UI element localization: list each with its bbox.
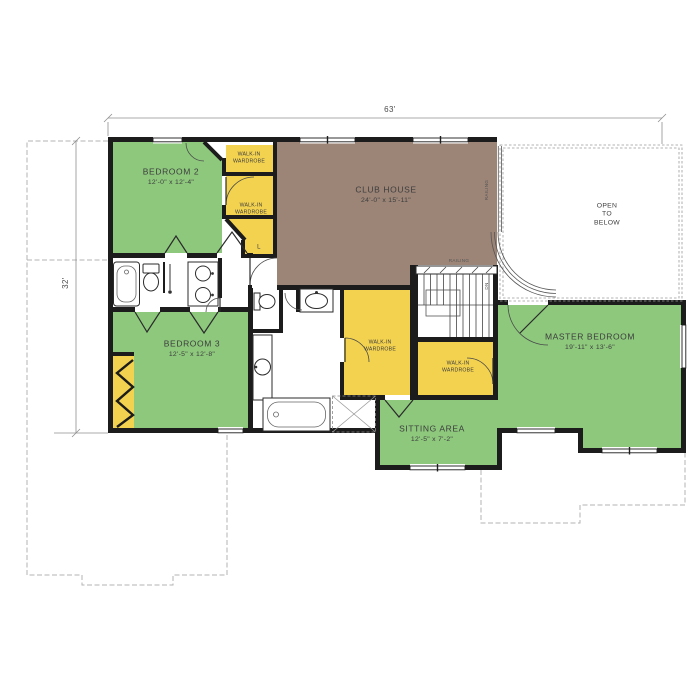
bedroom3-size: 12'-5" x 12'-8" [169,351,215,359]
master-bedroom-floor [497,305,681,448]
sink-icon [300,289,333,312]
open-to-below-label: OPEN TO BELOW [594,202,620,227]
sitting-area-size: 12'-5" x 7'-2" [411,436,453,444]
bedroom2-label: BEDROOM 2 [143,167,199,178]
window [680,325,688,368]
sitting-area-label: SITTING AREA [399,424,465,435]
master-bedroom-label: MASTER BEDROOM [545,332,635,343]
floor-plan: 63' 32' BEDROOM 2 12'-0" x 12'-4" CLUB H… [0,0,700,700]
wardrobe3-label: WALK-IN WARDROBE [364,339,396,353]
railing-label-horizontal: RAILING [449,258,469,264]
toilet-icon [143,264,159,291]
bathtub-icon [114,262,140,306]
stairs-down-label: DN [484,282,490,289]
shower-icon [333,396,376,432]
window [218,427,243,435]
master-bedroom-size: 19'-11" x 13'-6" [565,344,615,352]
railing-label-vertical: RAILING [484,180,490,200]
wardrobe2-label: WALK-IN WARDROBE [235,202,267,216]
club-house-size: 24'-0" x 15'-11" [361,197,411,205]
bedroom2-size: 12'-0" x 12'-4" [148,179,194,187]
club-house-label: CLUB HOUSE [355,185,416,196]
dimension-height-label: 32' [61,277,71,289]
wardrobe4-label: WALK-IN WARDROBE [442,360,474,374]
wardrobe1-label: WALK-IN WARDROBE [233,151,265,165]
linen-closet-label: L [257,244,261,252]
window [300,136,355,144]
bathroom-fixtures [114,262,219,306]
stairs [418,274,493,337]
bathtub-icon [263,398,330,431]
bedroom3-label: BEDROOM 3 [164,339,220,350]
vanity-sink-icon [253,335,272,400]
window [413,136,468,144]
window [153,136,182,144]
dimension-width-label: 63' [384,105,396,115]
bedroom2-floor [113,142,222,253]
window [410,464,465,472]
window [602,447,657,455]
window [517,427,555,435]
toilet-icon [254,293,275,310]
